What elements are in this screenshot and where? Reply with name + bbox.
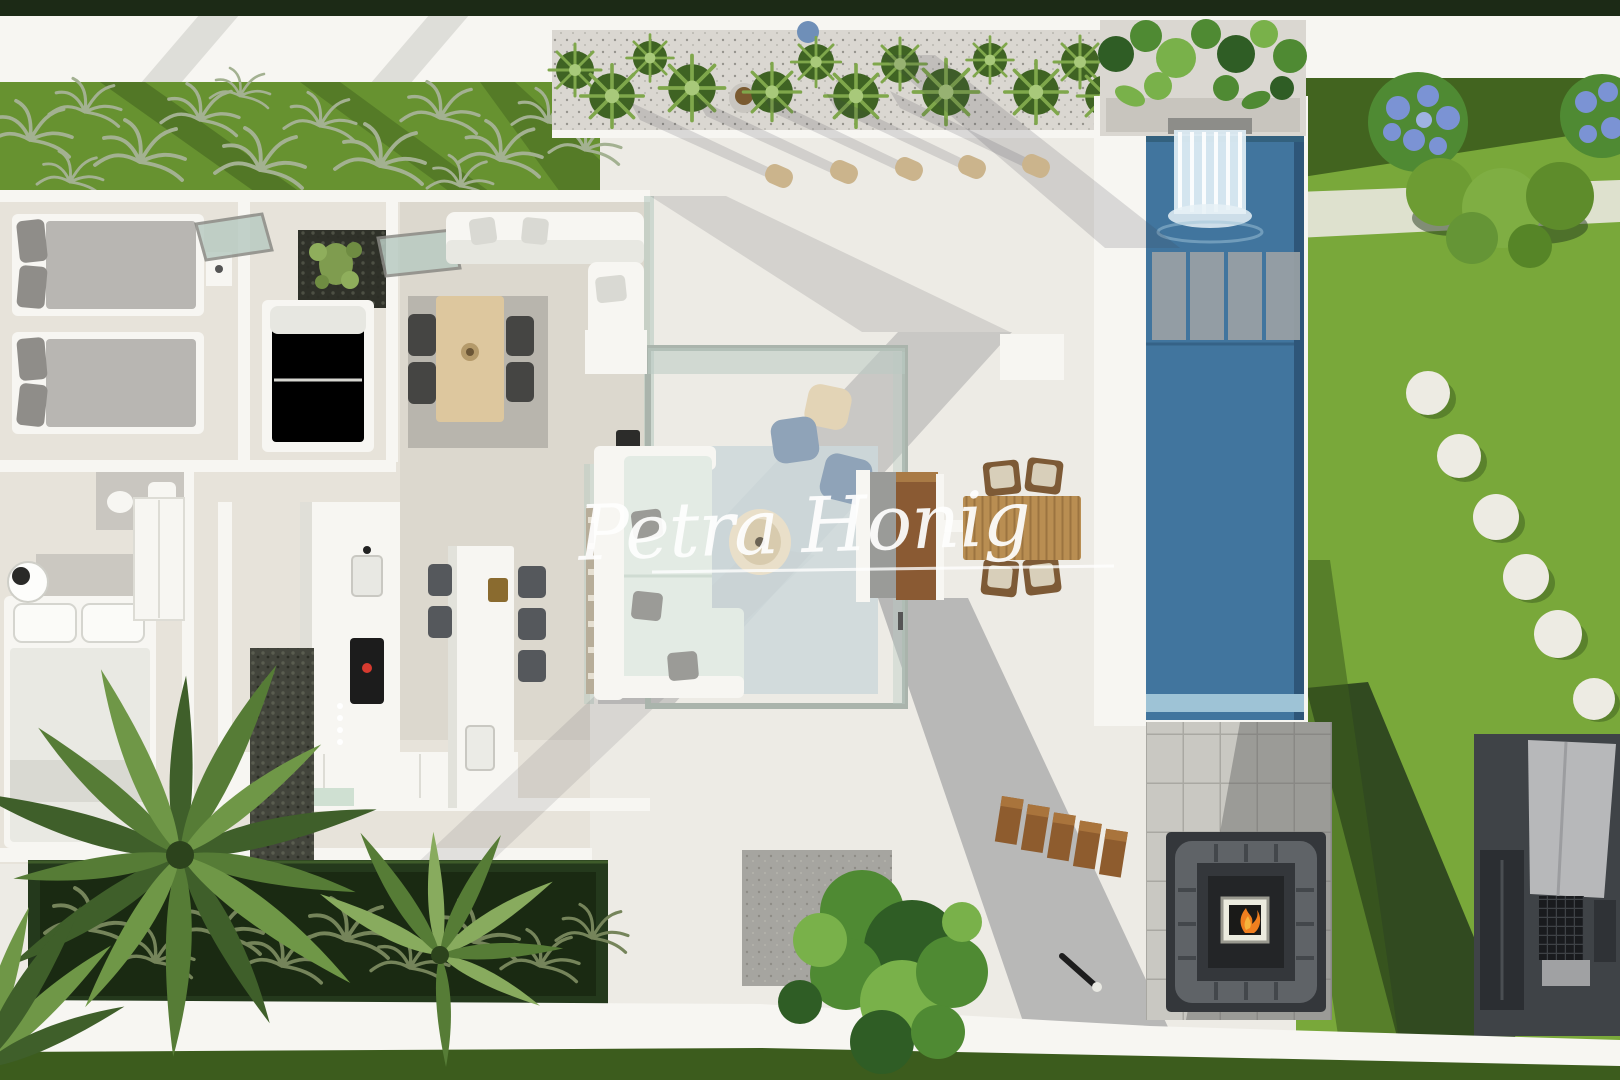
kitchen-mat xyxy=(314,788,354,806)
sofa-pillow xyxy=(521,217,550,246)
floor-lamp-shade xyxy=(12,567,30,585)
island-sink xyxy=(466,726,494,770)
dining-chair xyxy=(506,316,534,356)
sunken-fire-pit-lounge xyxy=(1146,722,1332,1020)
dining-chair xyxy=(408,362,436,404)
villa-aerial-render: Petra Honig xyxy=(0,0,1620,1080)
render-canvas: Petra Honig xyxy=(0,0,1620,1080)
study-bedroom-daybed xyxy=(262,300,374,452)
bath-fixture xyxy=(107,491,133,513)
bar-stool xyxy=(428,564,452,596)
bed-pillow xyxy=(16,219,48,264)
bbq-panel xyxy=(1528,740,1616,898)
faucet xyxy=(363,546,371,554)
bed-pillow xyxy=(14,604,76,642)
sofa-pillow xyxy=(631,591,664,622)
sofa-pillow xyxy=(667,651,699,682)
pouf xyxy=(769,415,821,465)
bed-pillow xyxy=(16,383,48,428)
hydrangea-bush xyxy=(1368,72,1468,172)
bar-stool xyxy=(518,566,546,598)
bed-duvet xyxy=(46,221,196,309)
roof-planter-strip xyxy=(549,21,1135,138)
wall xyxy=(0,190,650,202)
nightstand-lamp xyxy=(215,265,223,273)
kitchen-sink xyxy=(352,556,382,596)
bed-duvet xyxy=(46,339,196,427)
swimming-pool xyxy=(1094,19,1308,726)
bbq-side-unit xyxy=(1594,900,1616,962)
glass-skylight xyxy=(196,214,272,260)
terrace-wall-block xyxy=(1000,334,1064,380)
bed-pillow xyxy=(16,265,48,309)
cactus-courtyard xyxy=(298,230,386,308)
pergola-glass-beam xyxy=(648,348,905,374)
grate-grid xyxy=(1538,896,1584,960)
ornamental-grass-bed xyxy=(0,68,621,199)
pool-edge-shade xyxy=(1294,128,1304,720)
bar-stool xyxy=(518,608,546,640)
watermark-text: Petra Honig xyxy=(575,473,1032,578)
hob-burner xyxy=(362,663,372,673)
bed-pillow xyxy=(16,337,48,381)
outdoor-kitchen-bbq xyxy=(1474,734,1620,1036)
wall xyxy=(0,460,396,472)
sofa-pillow xyxy=(595,275,628,304)
indoor-dining xyxy=(408,296,548,448)
boundary-hedge xyxy=(0,0,1620,16)
daybed-pillow xyxy=(270,306,366,334)
glass-door-handle xyxy=(898,612,903,630)
bbq-counter xyxy=(1542,960,1590,986)
dining-chair xyxy=(506,362,534,402)
sofa-pillow xyxy=(468,216,497,245)
bar-stool xyxy=(518,650,546,682)
pot-plant xyxy=(735,87,753,105)
submerged-bench xyxy=(1146,694,1304,712)
coffee-machine xyxy=(488,578,508,602)
floor-lamp xyxy=(8,562,48,602)
terrace-wall-block xyxy=(585,330,647,374)
dining-chair xyxy=(408,314,436,356)
bar-stool xyxy=(428,606,452,638)
